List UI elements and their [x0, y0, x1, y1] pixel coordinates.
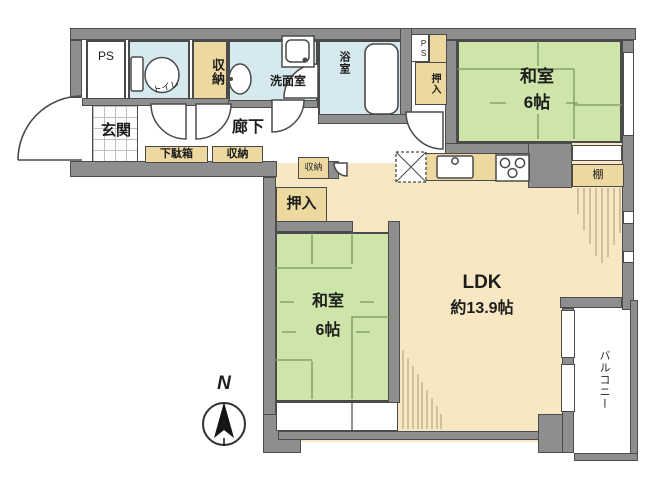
wall-top — [70, 28, 636, 40]
wall-hall-stub — [328, 161, 339, 179]
shelf-label: 棚 — [572, 169, 624, 182]
hall-label: 廊下 — [222, 119, 274, 137]
window-ldk-right-2 — [623, 251, 634, 263]
storage-top-label: 収納 — [196, 46, 224, 98]
wall-washitsu-ldk — [388, 221, 400, 403]
wall-washroom-bottom-a — [228, 100, 276, 108]
washitsu-top-label: 和室 — [505, 67, 569, 87]
washroom-label: 洗面室 — [245, 75, 331, 89]
window-balcony-1 — [561, 310, 575, 358]
balcony-label: バルコニー — [594, 330, 610, 430]
genkan-label: 玄関 — [94, 122, 138, 139]
box-window-strip-top — [572, 145, 622, 161]
wall-left-upper — [70, 40, 82, 98]
compass-icon — [203, 402, 245, 446]
wall-rooms-bottom-left — [82, 98, 230, 106]
room-washitsu-top — [457, 40, 622, 143]
window-balcony-2 — [561, 364, 575, 412]
washitsu-top-size-label: 6帖 — [505, 93, 569, 113]
wall-balcony-outer — [630, 300, 638, 461]
room-toilet — [128, 40, 190, 104]
closet-right-label: 押入 — [422, 66, 440, 102]
floor-plan: PS トイレ 収納 洗面室 浴室 PS 押入 和室 6帖 玄関 廊下 下駄箱 収… — [0, 0, 652, 485]
window-ldk-right-1 — [623, 211, 634, 224]
room-washroom — [228, 40, 318, 102]
box-kitchen-counter — [425, 153, 530, 181]
wall-closet-bottom — [276, 221, 353, 232]
closet-bottom-label: 押入 — [276, 195, 327, 212]
wall-washroom-bottom-b — [302, 100, 318, 108]
shoebox-label: 下駄箱 — [145, 148, 208, 161]
box-window-band-bottom — [276, 402, 398, 431]
wall-bath-bottom — [318, 114, 412, 124]
window-washitsu-right — [623, 52, 634, 136]
ps-label: PS — [86, 50, 126, 64]
ldk-label: LDK — [442, 272, 522, 294]
washitsu-bottom-size-label: 6帖 — [296, 322, 360, 340]
washitsu-bottom-label: 和室 — [296, 293, 360, 311]
storage-small-label: 収納 — [298, 162, 329, 172]
ps-small-label: PS — [412, 36, 428, 61]
wall-balcony-bottom — [574, 453, 638, 461]
ldk-size-label: 約13.9帖 — [432, 300, 532, 318]
bath-label: 浴室 — [334, 42, 350, 84]
wall-balcony-top — [560, 297, 622, 308]
wall-left-lower — [263, 177, 276, 453]
wall-kitchen-right — [528, 143, 572, 188]
room-washitsu-bottom — [275, 232, 398, 402]
storage-hall-label: 収納 — [212, 148, 263, 161]
wall-corridor-bottom — [70, 161, 277, 177]
compass-north-label: N — [210, 373, 238, 395]
wall-bottom — [278, 431, 570, 440]
entrance-door-arc-icon — [18, 96, 82, 160]
corridor-nook-floor — [408, 103, 447, 153]
